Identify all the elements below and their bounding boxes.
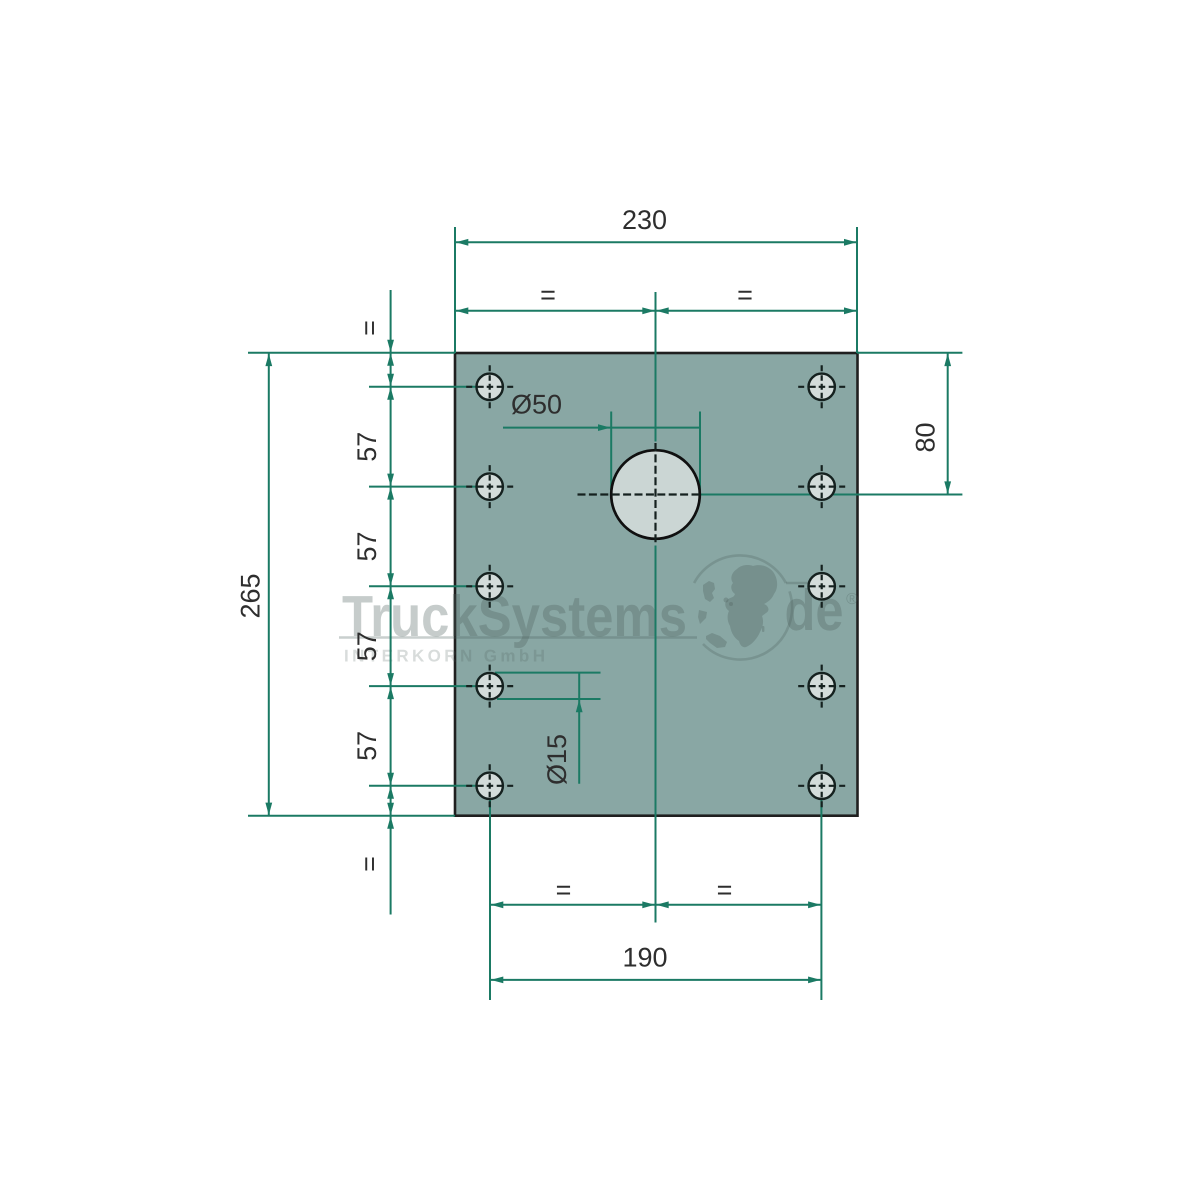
svg-text:57: 57	[352, 531, 382, 561]
svg-text:=: =	[355, 320, 385, 336]
svg-text:57: 57	[352, 432, 382, 462]
svg-text:=: =	[717, 875, 733, 905]
svg-text:265: 265	[236, 573, 266, 618]
svg-text:=: =	[540, 280, 556, 310]
svg-text:80: 80	[911, 422, 941, 452]
svg-text:Ø50: Ø50	[511, 390, 562, 420]
svg-text:230: 230	[622, 205, 667, 235]
svg-text:=: =	[737, 280, 753, 310]
svg-text:190: 190	[622, 943, 667, 973]
svg-text:=: =	[556, 875, 572, 905]
svg-text:=: =	[355, 856, 385, 872]
svg-text:57: 57	[352, 731, 382, 761]
svg-text:Ø15: Ø15	[542, 734, 572, 785]
svg-text:57: 57	[352, 631, 382, 661]
svg-text:®: ®	[846, 591, 858, 608]
svg-text:TruckSystems: TruckSystems	[342, 584, 687, 649]
